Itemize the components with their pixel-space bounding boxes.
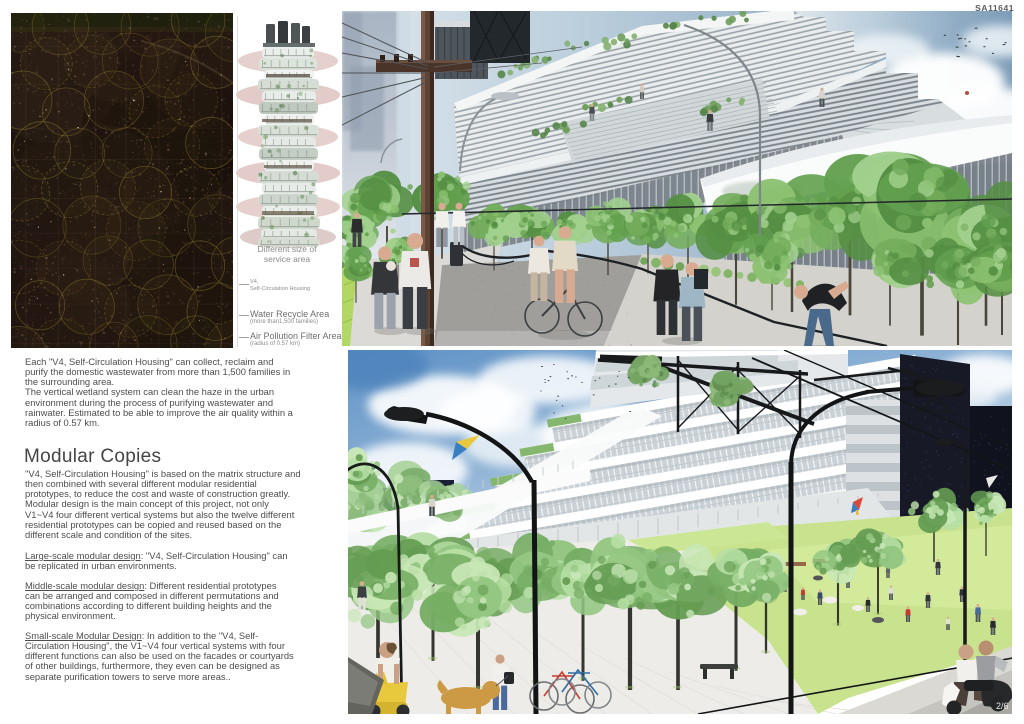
svg-text:2/6: 2/6 bbox=[996, 701, 1009, 711]
